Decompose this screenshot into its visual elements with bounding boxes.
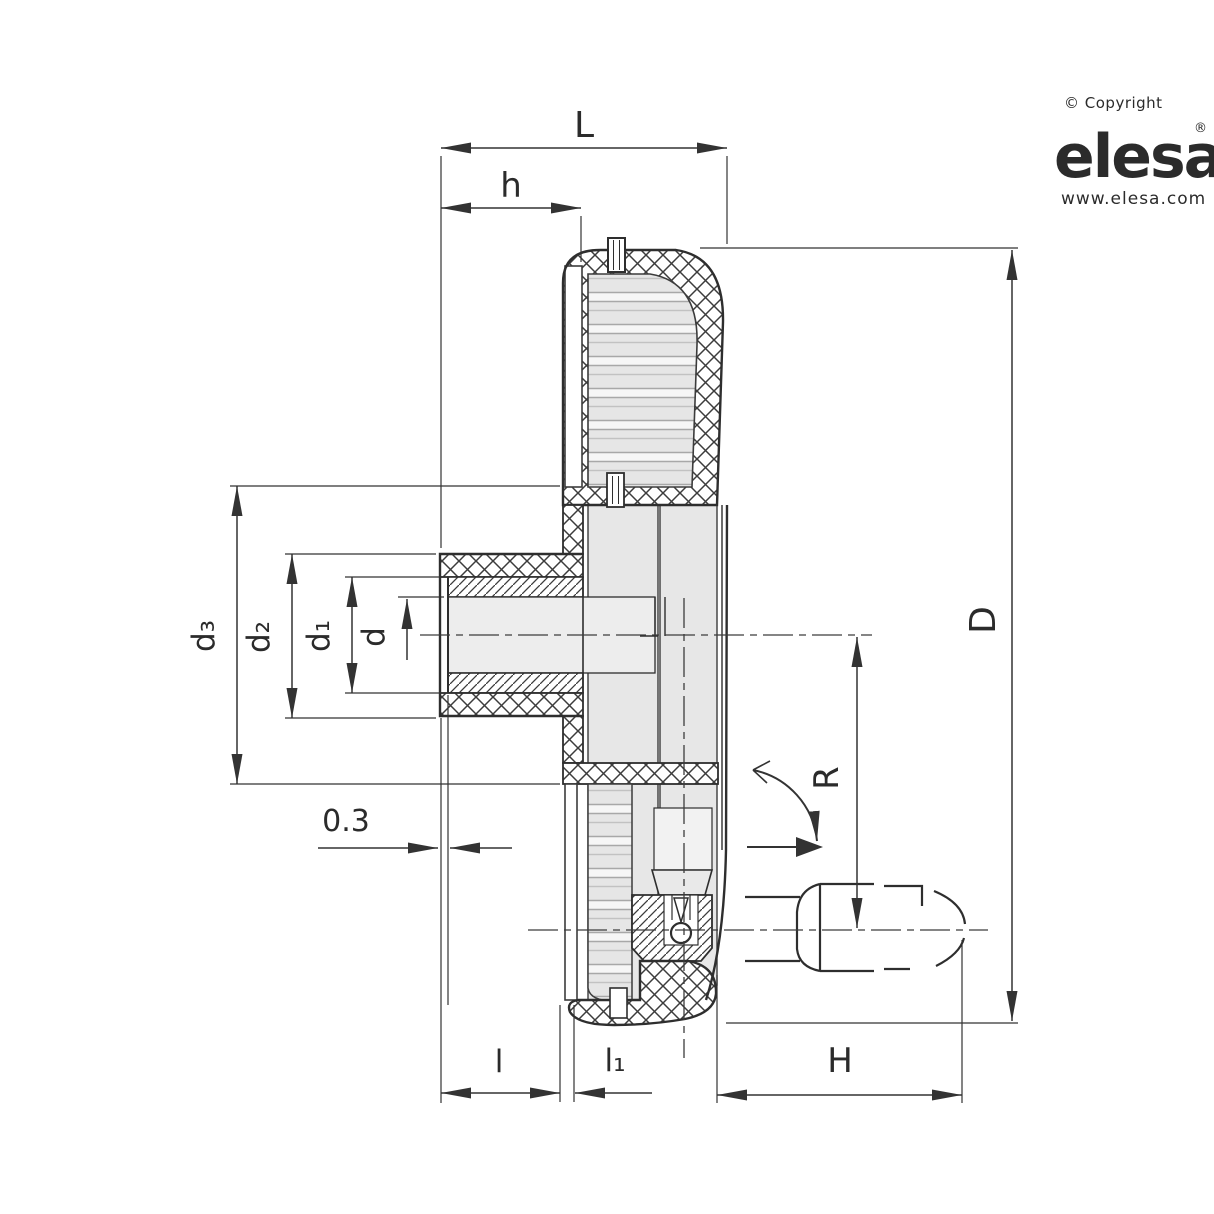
technical-drawing-page: L h d₃ d₂ d₁ d 0.3 l l₁ H D R © Copyrigh… (0, 0, 1214, 1214)
bottom-rim-ribs (588, 784, 632, 1001)
handle-end-dome (934, 891, 965, 966)
dim-label-h: h (500, 166, 522, 206)
bottom-cap-lug (610, 988, 627, 1018)
bottom-rim-front-face (565, 784, 577, 1000)
elesa-logo: elesa (1054, 122, 1214, 192)
brand-block: © Copyright elesa ® www.elesa.com (1054, 94, 1214, 209)
ext-l-l1 (560, 1005, 574, 1102)
handle-collar (797, 884, 820, 971)
dim-label-H: H (827, 1041, 853, 1081)
detent-ball (671, 923, 691, 943)
handwheel-section-drawing: L h d₃ d₂ d₁ d 0.3 l l₁ H D R © Copyrigh… (0, 0, 1214, 1214)
copyright-text: © Copyright (1064, 94, 1163, 112)
top-rim-ribs (588, 274, 697, 487)
handle-neck (745, 897, 800, 961)
mid-cap-lug (607, 473, 624, 507)
hub-plastic-bottom (440, 693, 583, 716)
dim-label-R: R (807, 766, 847, 790)
dim-label-face-offset: 0.3 (322, 804, 370, 839)
ext-D (700, 248, 1018, 1023)
handle-fold-recess (654, 808, 712, 870)
hub-plastic-top (440, 554, 583, 577)
top-rim-front-face (565, 266, 582, 487)
front-recess-wall-bottom (563, 716, 583, 763)
dim-label-d1: d₁ (301, 620, 337, 652)
dim-label-d: d (356, 627, 392, 647)
direction-arrow-head (796, 837, 823, 857)
hub-insert-top (448, 577, 583, 597)
dim-label-L: L (574, 105, 594, 146)
handle-body-broken (820, 884, 922, 971)
dim-label-D: D (963, 606, 1004, 634)
bottom-recess-strip (563, 763, 718, 784)
handle-base (652, 870, 712, 895)
top-cap-lug (608, 238, 625, 272)
registered-mark: ® (1194, 121, 1207, 136)
dim-label-l1: l₁ (604, 1043, 625, 1079)
dim-label-l: l (495, 1044, 504, 1080)
website-text: www.elesa.com (1061, 189, 1206, 209)
fold-away-handle (745, 884, 965, 971)
dim-label-d2: d₂ (241, 621, 277, 653)
front-recess-wall-top (563, 505, 583, 554)
hub-insert-bottom (448, 673, 583, 693)
dim-label-d3: d₃ (186, 620, 222, 652)
